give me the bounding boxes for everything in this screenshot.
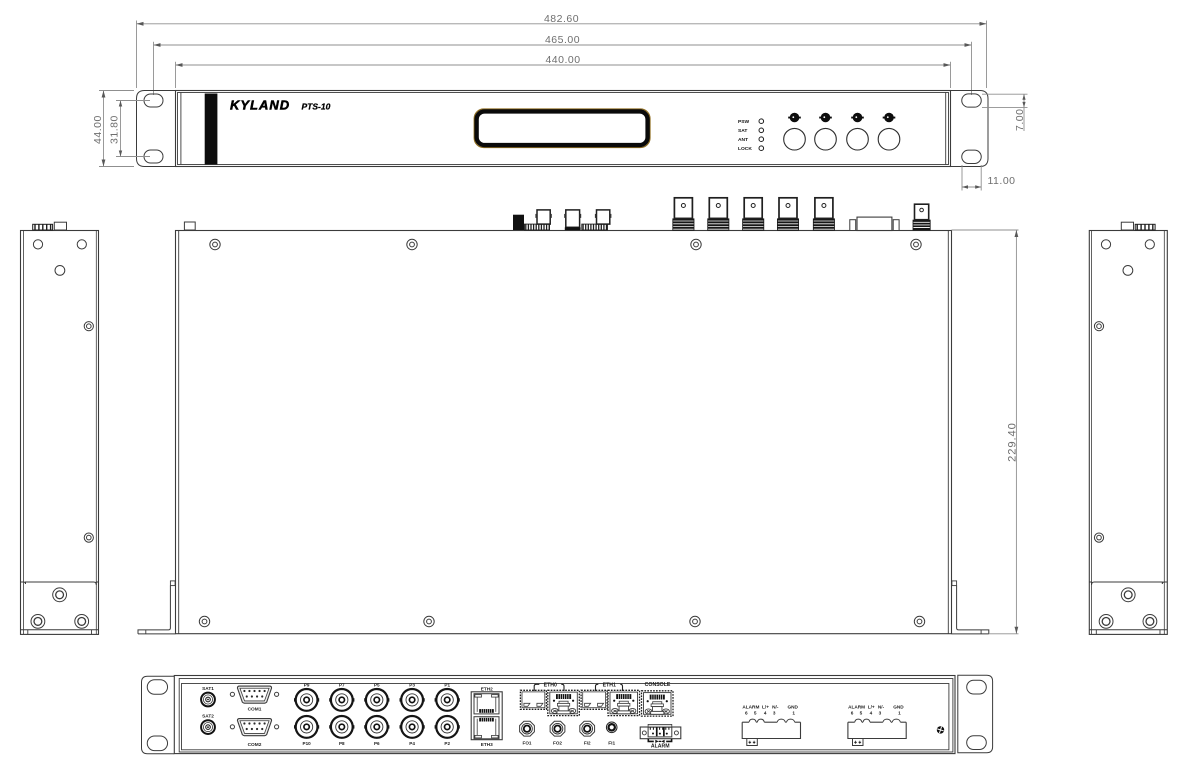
svg-text:PSW: PSW (738, 119, 750, 125)
svg-text:COM2: COM2 (248, 742, 262, 748)
svg-text:P2: P2 (444, 741, 450, 746)
svg-text:FO2: FO2 (553, 740, 562, 745)
svg-text:PTS-10: PTS-10 (302, 102, 331, 112)
svg-text:L/+: L/+ (868, 705, 875, 710)
svg-text:31.80: 31.80 (108, 115, 120, 144)
svg-text:5: 5 (860, 711, 863, 716)
svg-text:5: 5 (754, 711, 757, 716)
svg-text:229.40: 229.40 (1007, 422, 1019, 462)
svg-text:P4: P4 (409, 741, 415, 746)
svg-text:N/-: N/- (878, 705, 885, 710)
svg-text:P9: P9 (304, 682, 310, 687)
svg-text:44.00: 44.00 (92, 115, 104, 144)
svg-text:P10: P10 (303, 741, 312, 746)
svg-text:COM1: COM1 (248, 707, 262, 713)
svg-text:440.00: 440.00 (545, 54, 580, 66)
svg-text:1: 1 (792, 711, 795, 716)
svg-text:ALARM: ALARM (742, 705, 759, 710)
svg-text:ALARM: ALARM (651, 744, 670, 750)
svg-text:ANT: ANT (738, 137, 748, 143)
svg-text:ETH0: ETH0 (544, 682, 557, 688)
svg-text:6: 6 (745, 711, 748, 716)
svg-text:482.60: 482.60 (544, 13, 579, 25)
svg-text:3: 3 (879, 711, 882, 716)
svg-text:GND: GND (787, 705, 798, 710)
svg-text:P5: P5 (374, 682, 380, 687)
svg-text:ETH1: ETH1 (603, 682, 616, 688)
svg-text:1: 1 (898, 711, 901, 716)
svg-text:P1: P1 (444, 682, 450, 687)
svg-text:P6: P6 (374, 741, 380, 746)
svg-text:11.00: 11.00 (988, 175, 1016, 187)
svg-text:4: 4 (764, 711, 767, 716)
svg-text:SAT: SAT (738, 128, 747, 134)
svg-text:465.00: 465.00 (545, 34, 580, 46)
svg-text:ETH2: ETH2 (481, 686, 493, 691)
svg-text:P8: P8 (339, 741, 345, 746)
svg-text:SAT2: SAT2 (202, 714, 214, 719)
svg-text:P3: P3 (409, 682, 415, 687)
svg-text:P7: P7 (339, 682, 345, 687)
svg-text:ALARM: ALARM (848, 705, 865, 710)
svg-text:4: 4 (870, 711, 873, 716)
svg-text:GND: GND (893, 705, 904, 710)
svg-text:7.00: 7.00 (1014, 109, 1026, 131)
svg-text:ETH3: ETH3 (481, 742, 493, 747)
svg-text:KYLAND: KYLAND (230, 98, 290, 113)
svg-text:CONSOLE: CONSOLE (645, 682, 671, 688)
svg-text:3: 3 (773, 711, 776, 716)
svg-text:FO1: FO1 (523, 740, 532, 745)
svg-text:L/+: L/+ (762, 705, 769, 710)
svg-text:SAT1: SAT1 (202, 686, 214, 691)
svg-text:6: 6 (851, 711, 854, 716)
svg-text:LOCK: LOCK (738, 146, 752, 152)
svg-text:FI1: FI1 (608, 740, 615, 746)
svg-text:N/-: N/- (772, 705, 779, 710)
svg-text:FI2: FI2 (584, 740, 591, 745)
